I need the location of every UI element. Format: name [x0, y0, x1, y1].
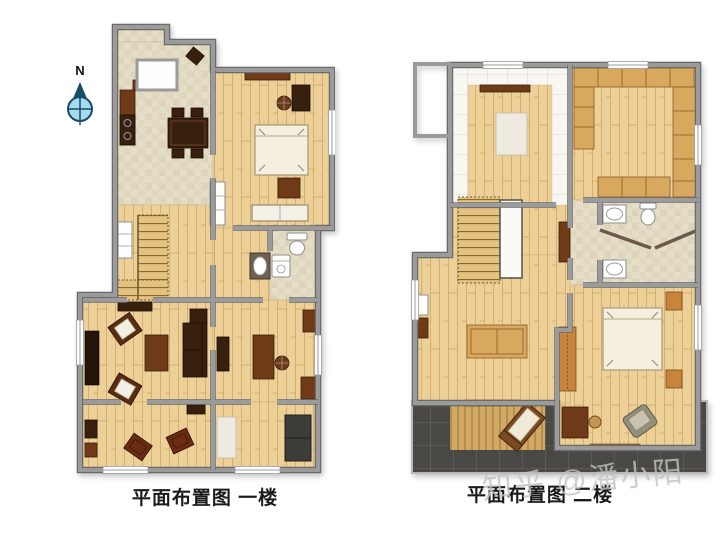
floor1-caption: 平面布置图 一楼 — [75, 483, 335, 510]
floor1-entry-closet — [137, 60, 177, 90]
floor1-rug — [217, 417, 236, 458]
floor1-study-shelf-1 — [303, 310, 316, 332]
floor2-staircase — [458, 197, 522, 283]
floor1-study-chair — [275, 356, 289, 370]
floor1-washing-machine — [272, 255, 290, 277]
floor1-study-cabinet — [217, 337, 229, 371]
floor1-sink — [250, 253, 270, 279]
north-label: N — [60, 64, 100, 78]
floor2-sink-1 — [603, 205, 626, 223]
floor2-wardrobe-strip — [559, 327, 576, 391]
floor1-tv-cabinet — [85, 331, 99, 385]
floor2-plan — [408, 55, 712, 485]
floor2-low-table — [467, 325, 527, 358]
floor1-dark-cabinet — [285, 415, 311, 461]
floor2-headboard-shelf — [480, 85, 530, 92]
floorplan-page: N — [0, 0, 720, 540]
floor2-sink-2 — [603, 260, 626, 278]
floor2-desk-chair — [589, 416, 601, 428]
floor1-desk — [292, 85, 310, 111]
window — [235, 467, 280, 474]
floor2-bedroom2-rug — [496, 113, 527, 155]
floor2-nightstand-2 — [666, 370, 682, 388]
window — [412, 280, 419, 320]
floor1-study-desk — [253, 335, 274, 379]
floor1-side-table-1 — [85, 420, 97, 438]
floor2-desk — [562, 407, 588, 438]
window — [695, 305, 702, 350]
north-indicator: N — [60, 64, 100, 131]
floor1-study-shelf-2 — [301, 377, 316, 399]
window — [695, 125, 702, 165]
floor1-side-table-2 — [85, 443, 97, 457]
floor1-bedroom-bench — [252, 205, 308, 221]
floor1-desk-chair — [277, 96, 291, 110]
floor2-hall-chest — [417, 318, 428, 338]
floor1-bedroom-rug — [278, 178, 300, 198]
window — [77, 320, 84, 365]
floor2-nightstand-1 — [666, 292, 682, 310]
window — [315, 335, 322, 375]
window — [608, 62, 648, 69]
floor1-sideboard — [118, 302, 152, 311]
floor2-toilet — [640, 203, 656, 225]
floor1-plan — [75, 15, 335, 480]
floor1-coffee-table — [145, 335, 168, 371]
floor1-fridge — [118, 222, 132, 258]
window — [329, 110, 336, 155]
floor2-bed — [603, 308, 662, 370]
window — [483, 62, 523, 69]
floor1-kitchen-counter — [120, 90, 135, 145]
compass-icon — [60, 78, 100, 126]
floor1-low-cabinet — [187, 405, 205, 414]
floor1-bed — [255, 125, 308, 175]
window — [103, 467, 148, 474]
